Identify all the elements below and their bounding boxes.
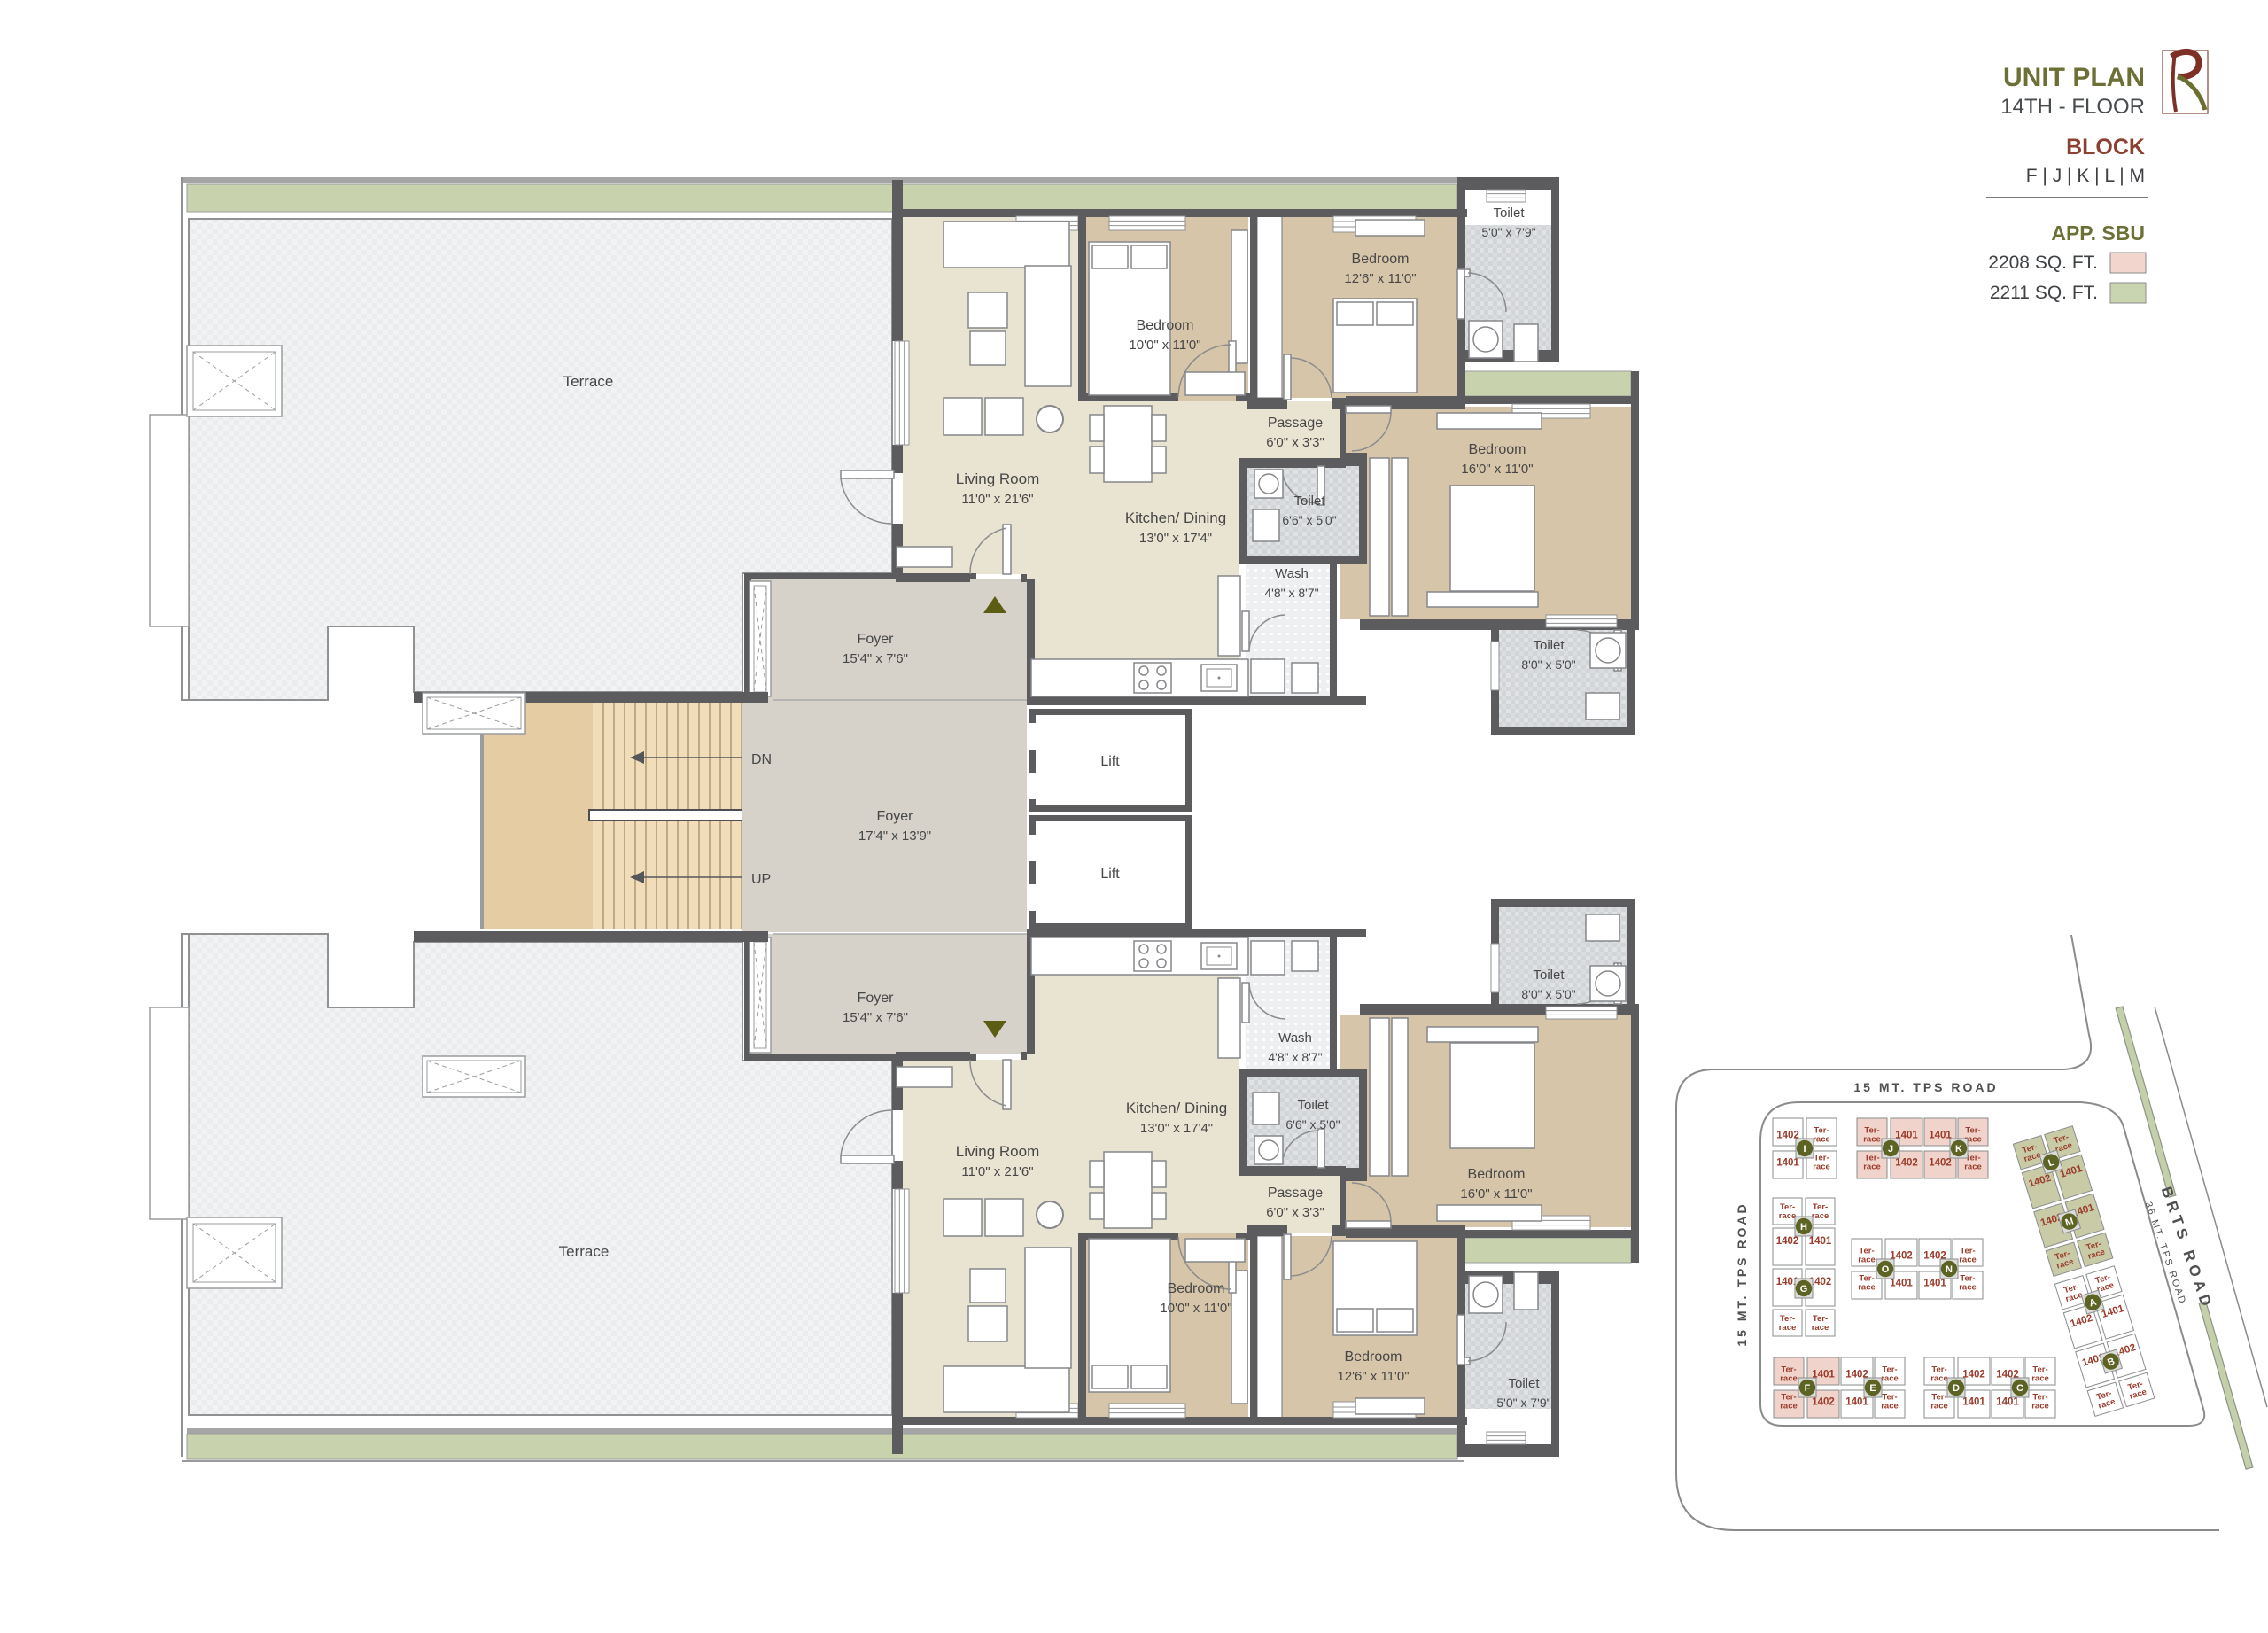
svg-text:UNIT PLAN: UNIT PLAN — [2003, 63, 2145, 92]
svg-text:16'0" x 11'0": 16'0" x 11'0" — [1460, 1186, 1532, 1201]
svg-text:16'0" x 11'0": 16'0" x 11'0" — [1461, 462, 1533, 477]
svg-text:2208 SQ. FT.: 2208 SQ. FT. — [1988, 253, 2098, 273]
svg-text:race: race — [1779, 1323, 1797, 1333]
svg-text:J: J — [1888, 1144, 1893, 1155]
svg-text:6'6" x 5'0": 6'6" x 5'0" — [1285, 1117, 1340, 1131]
svg-text:1402: 1402 — [1812, 1397, 1835, 1408]
svg-text:G: G — [1800, 1284, 1808, 1295]
svg-text:BLOCK: BLOCK — [2066, 135, 2145, 159]
svg-text:Lift: Lift — [1100, 867, 1120, 882]
svg-text:DN: DN — [751, 752, 772, 767]
svg-text:race: race — [1813, 1163, 1830, 1172]
svg-text:1402: 1402 — [1962, 1370, 1985, 1380]
svg-text:Wash: Wash — [1278, 1030, 1312, 1046]
svg-text:1401: 1401 — [1845, 1397, 1868, 1408]
svg-text:14TH - FLOOR: 14TH - FLOOR — [2000, 95, 2145, 119]
svg-text:APP. SBU: APP. SBU — [2051, 222, 2145, 245]
svg-text:15'4" x 7'6": 15'4" x 7'6" — [843, 1010, 908, 1025]
svg-text:race: race — [1780, 1374, 1798, 1384]
svg-text:race: race — [2031, 1402, 2049, 1411]
svg-text:F | J | K | L | M: F | J | K | L | M — [2026, 166, 2145, 186]
svg-text:8'0" x 5'0": 8'0" x 5'0" — [1521, 987, 1575, 1001]
svg-text:Terrace: Terrace — [559, 1243, 610, 1260]
svg-text:1402: 1402 — [1929, 1158, 1952, 1169]
svg-text:race: race — [1813, 1135, 1830, 1145]
svg-text:Kitchen/ Dining: Kitchen/ Dining — [1126, 1100, 1227, 1116]
svg-text:Foyer: Foyer — [877, 809, 914, 824]
svg-text:Living Room: Living Room — [956, 470, 1040, 487]
svg-text:15'4" x 7'6": 15'4" x 7'6" — [843, 651, 908, 666]
svg-text:H: H — [1800, 1222, 1807, 1233]
svg-text:Toilet: Toilet — [1533, 968, 1565, 983]
svg-text:4'8" x 8'7": 4'8" x 8'7" — [1264, 586, 1318, 600]
svg-text:C: C — [2016, 1383, 2023, 1394]
svg-text:race: race — [1959, 1283, 1977, 1293]
svg-text:Bedroom: Bedroom — [1137, 318, 1194, 333]
svg-text:5'0" x 7'9": 5'0" x 7'9" — [1481, 225, 1535, 239]
svg-text:Living Room: Living Room — [956, 1143, 1040, 1160]
svg-text:race: race — [1863, 1135, 1881, 1145]
svg-text:Kitchen/ Dining: Kitchen/ Dining — [1125, 509, 1226, 526]
svg-text:6'0" x 3'3": 6'0" x 3'3" — [1266, 1205, 1324, 1220]
svg-text:race: race — [1959, 1256, 1977, 1265]
svg-text:12'6" x 11'0": 12'6" x 11'0" — [1344, 271, 1416, 286]
svg-text:15 MT. TPS ROAD: 15 MT. TPS ROAD — [1735, 1201, 1749, 1346]
svg-text:UP: UP — [751, 872, 771, 887]
svg-text:race: race — [1812, 1323, 1829, 1333]
svg-text:race: race — [1881, 1402, 1899, 1411]
svg-text:6'6" x 5'0": 6'6" x 5'0" — [1282, 513, 1336, 527]
svg-text:1401: 1401 — [1996, 1397, 2019, 1408]
svg-text:1401: 1401 — [1929, 1131, 1952, 1141]
svg-text:E: E — [1869, 1383, 1876, 1394]
svg-text:race: race — [1779, 1211, 1797, 1221]
svg-text:6'0" x 3'3": 6'0" x 3'3" — [1266, 435, 1324, 450]
svg-text:race: race — [1863, 1163, 1881, 1172]
svg-text:race: race — [1964, 1163, 1982, 1172]
svg-text:Bedroom: Bedroom — [1352, 252, 1410, 267]
svg-text:D: D — [1953, 1383, 1960, 1394]
svg-text:1401: 1401 — [1809, 1236, 1832, 1247]
svg-text:Toilet: Toilet — [1297, 1098, 1329, 1113]
svg-text:13'0" x 17'4": 13'0" x 17'4" — [1140, 1121, 1213, 1136]
svg-text:Passage: Passage — [1268, 1186, 1323, 1201]
svg-text:race: race — [2031, 1374, 2049, 1384]
svg-text:1401: 1401 — [1923, 1279, 1946, 1289]
svg-text:10'0" x 11'0": 10'0" x 11'0" — [1129, 338, 1200, 353]
svg-text:N: N — [1946, 1264, 1953, 1275]
svg-text:8'0" x 5'0": 8'0" x 5'0" — [1521, 657, 1575, 672]
svg-text:race: race — [1780, 1402, 1798, 1411]
svg-text:race: race — [1881, 1374, 1899, 1384]
svg-text:race: race — [1930, 1374, 1948, 1384]
svg-text:K: K — [1955, 1144, 1962, 1155]
svg-text:Terrace: Terrace — [563, 373, 614, 390]
svg-text:1402: 1402 — [1776, 1236, 1799, 1247]
svg-text:Toilet: Toilet — [1293, 494, 1325, 509]
svg-text:Bedroom: Bedroom — [1469, 442, 1526, 457]
svg-text:2211 SQ. FT.: 2211 SQ. FT. — [1990, 283, 2098, 303]
svg-text:Toilet: Toilet — [1508, 1376, 1540, 1391]
svg-text:Toilet: Toilet — [1533, 638, 1565, 653]
svg-text:Foyer: Foyer — [858, 632, 895, 647]
svg-text:Bedroom: Bedroom — [1168, 1281, 1225, 1296]
svg-text:11'0" x 21'6": 11'0" x 21'6" — [961, 1164, 1033, 1179]
svg-text:race: race — [1812, 1211, 1829, 1221]
svg-text:1401: 1401 — [1890, 1279, 1913, 1289]
svg-text:4'8" x 8'7": 4'8" x 8'7" — [1268, 1050, 1322, 1064]
svg-text:17'4" x 13'9": 17'4" x 13'9" — [858, 828, 931, 844]
svg-text:11'0" x 21'6": 11'0" x 21'6" — [961, 492, 1033, 507]
svg-text:Bedroom: Bedroom — [1468, 1167, 1526, 1182]
svg-text:F: F — [1805, 1383, 1811, 1394]
svg-text:1402: 1402 — [1895, 1158, 1918, 1169]
svg-text:Wash: Wash — [1275, 566, 1309, 581]
svg-text:13'0" x 17'4": 13'0" x 17'4" — [1139, 531, 1212, 546]
svg-text:1401: 1401 — [1962, 1397, 1985, 1408]
svg-text:Toilet: Toilet — [1493, 206, 1525, 221]
svg-text:race: race — [1930, 1402, 1948, 1411]
svg-text:Bedroom: Bedroom — [1345, 1349, 1402, 1365]
svg-text:1401: 1401 — [1776, 1158, 1799, 1169]
svg-text:5'0" x 7'9": 5'0" x 7'9" — [1496, 1396, 1550, 1410]
svg-text:Lift: Lift — [1100, 754, 1120, 769]
svg-text:15 MT. TPS ROAD: 15 MT. TPS ROAD — [1853, 1080, 1998, 1094]
svg-text:race: race — [1858, 1283, 1876, 1293]
svg-text:race: race — [1858, 1256, 1876, 1265]
svg-text:Foyer: Foyer — [858, 991, 895, 1006]
svg-text:Passage: Passage — [1268, 416, 1323, 431]
svg-text:O: O — [1882, 1264, 1890, 1275]
svg-text:10'0" x 11'0": 10'0" x 11'0" — [1160, 1301, 1231, 1316]
svg-text:I: I — [1803, 1144, 1806, 1155]
svg-text:12'6" x 11'0": 12'6" x 11'0" — [1337, 1369, 1409, 1384]
